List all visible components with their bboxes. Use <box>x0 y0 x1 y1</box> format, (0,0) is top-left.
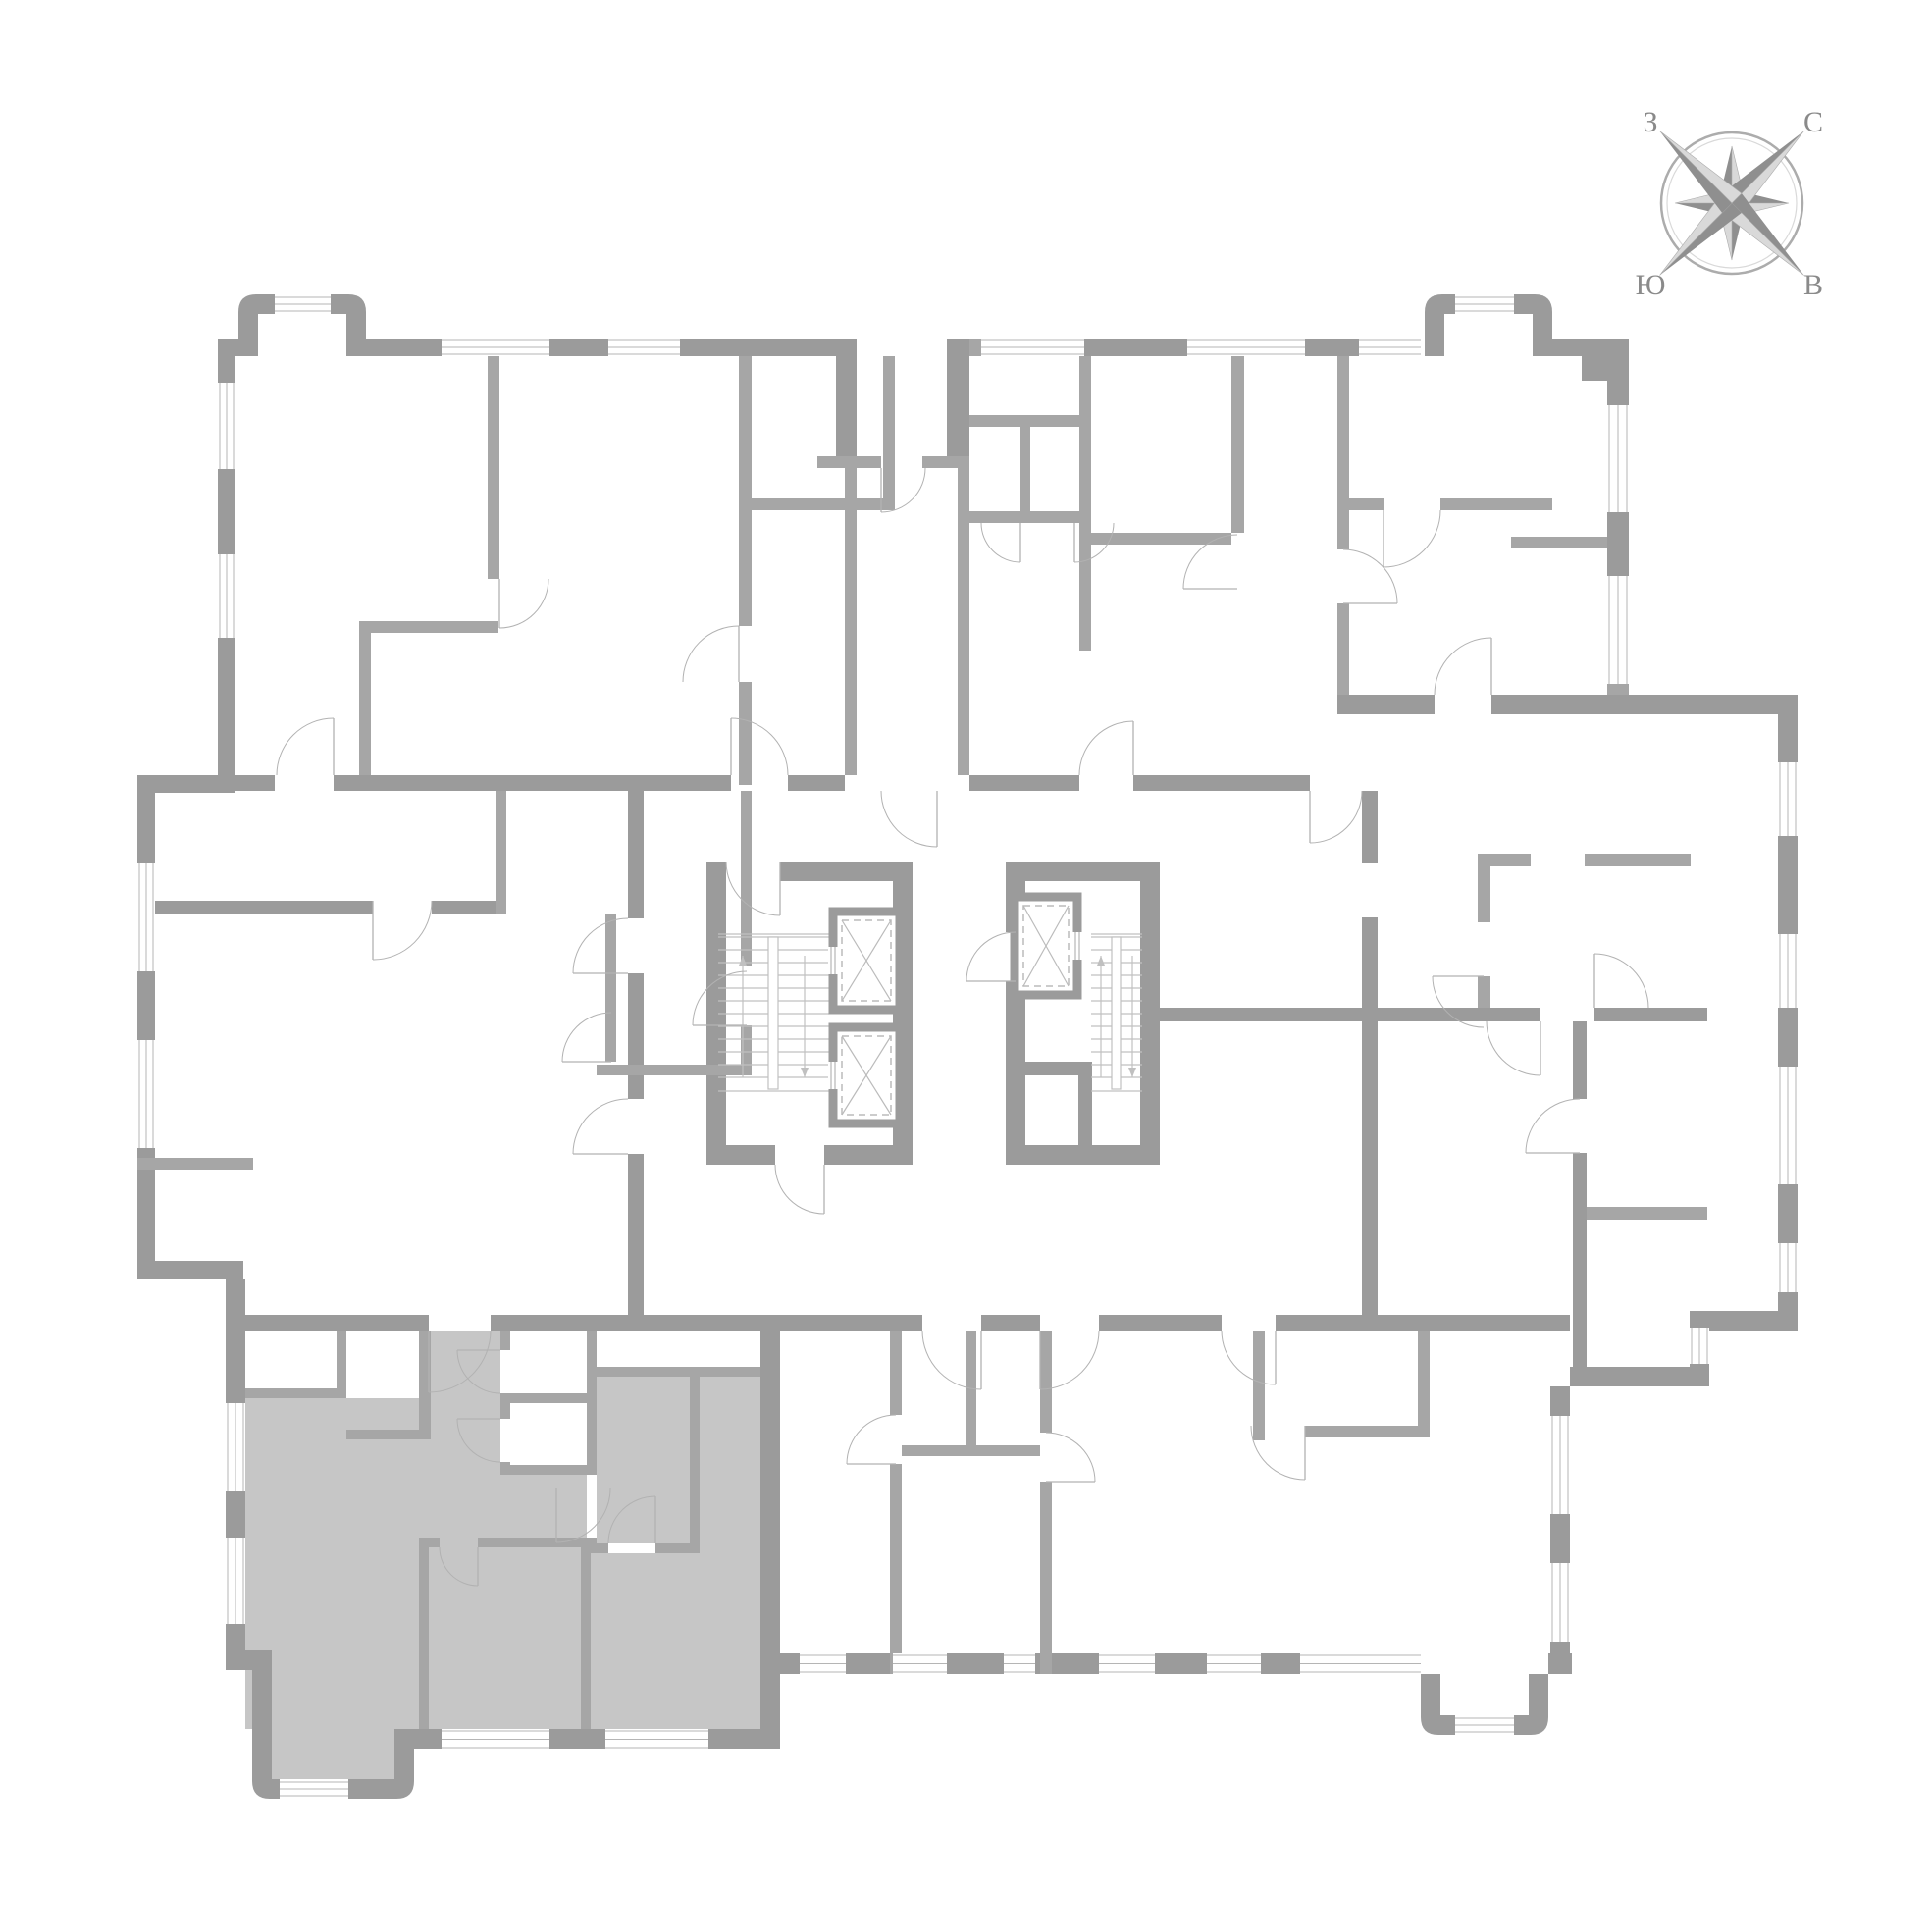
wall <box>1099 1315 1222 1331</box>
wall <box>1440 498 1552 510</box>
wall <box>1709 1311 1798 1331</box>
wall <box>947 339 969 468</box>
wall <box>890 1331 902 1415</box>
wall <box>1040 1482 1052 1674</box>
wall <box>628 791 644 918</box>
wall <box>655 1543 700 1553</box>
wall <box>245 1388 346 1398</box>
wall <box>680 339 836 356</box>
wall <box>1550 1514 1570 1563</box>
wall <box>1511 537 1607 548</box>
wall <box>739 682 752 785</box>
wall <box>1778 1184 1798 1243</box>
wall <box>958 468 969 775</box>
bay-interior <box>272 1729 394 1779</box>
wall <box>947 1653 1004 1674</box>
wall <box>1253 1331 1265 1440</box>
wall <box>419 1547 429 1729</box>
wall <box>752 498 883 510</box>
wall <box>549 339 608 356</box>
wall <box>337 1331 346 1398</box>
highlighted-room <box>700 1377 760 1553</box>
wall <box>1778 1008 1798 1067</box>
wall <box>1040 1331 1052 1433</box>
wall <box>1078 1062 1092 1165</box>
wall <box>1305 339 1359 356</box>
wall <box>491 1315 922 1331</box>
wall <box>1020 427 1030 523</box>
wall <box>1079 356 1091 523</box>
floor-plan: СВЮЗ <box>0 0 1932 1932</box>
wall <box>137 1261 243 1279</box>
compass-direction-label: С <box>1803 106 1823 138</box>
stair-stringer <box>768 937 778 1089</box>
wall <box>218 469 235 554</box>
wall <box>137 793 155 863</box>
wall <box>155 901 373 914</box>
wall <box>1418 1331 1430 1437</box>
wall <box>788 775 845 791</box>
wall <box>1006 862 1160 881</box>
wall <box>581 1547 591 1729</box>
wall <box>1552 339 1629 356</box>
wall <box>708 1729 780 1749</box>
wall <box>1491 695 1619 714</box>
wall <box>883 356 895 510</box>
wall <box>432 901 498 914</box>
wall <box>252 1658 272 1737</box>
compass-direction-label: Ю <box>1636 269 1666 301</box>
wall <box>1594 1008 1707 1021</box>
highlighted-room <box>419 1439 429 1538</box>
wall <box>605 914 616 1062</box>
wall <box>1231 356 1244 533</box>
wall <box>1362 791 1378 863</box>
wall <box>1478 866 1490 922</box>
wall <box>1690 1311 1709 1328</box>
wall <box>346 1430 429 1439</box>
wall <box>1079 523 1091 651</box>
wall <box>690 1377 700 1553</box>
wall <box>969 415 1086 427</box>
wall <box>587 1331 597 1475</box>
wall <box>1778 714 1798 762</box>
wall <box>218 638 235 775</box>
wall <box>1582 356 1607 381</box>
wall <box>1585 854 1691 866</box>
wall <box>137 1158 253 1170</box>
wall <box>1084 339 1187 356</box>
wall <box>836 339 857 468</box>
wall <box>366 339 442 356</box>
stair-stringer <box>1112 937 1121 1089</box>
wall <box>1587 1207 1707 1220</box>
wall <box>706 1145 775 1165</box>
wall <box>1305 1426 1418 1437</box>
wall <box>902 1445 1040 1456</box>
wall <box>1607 684 1629 695</box>
wall <box>414 1315 429 1331</box>
wall <box>496 791 506 914</box>
highlighted-room <box>346 1439 419 1729</box>
wall <box>817 456 881 468</box>
wall <box>419 1538 440 1547</box>
wall <box>845 468 857 775</box>
elevator-door-opening <box>1072 932 1082 960</box>
wall <box>1362 917 1378 1008</box>
highlighted-room <box>591 1553 760 1729</box>
wall <box>226 1624 245 1670</box>
wall <box>1607 512 1629 576</box>
wall <box>1133 775 1310 791</box>
wall <box>500 1393 597 1403</box>
wall <box>780 1653 800 1674</box>
wall <box>359 633 371 775</box>
wall <box>1550 1386 1570 1416</box>
wall <box>414 1729 442 1749</box>
elevator-door-opening <box>828 1062 838 1089</box>
wall <box>1261 1653 1300 1674</box>
wall <box>641 775 731 791</box>
wall <box>1349 498 1384 510</box>
wall <box>969 775 1079 791</box>
wall <box>359 621 498 633</box>
wall <box>890 1464 902 1674</box>
elevator-door-opening <box>828 947 838 974</box>
wall <box>824 1145 913 1165</box>
highlighted-room <box>597 1377 690 1543</box>
wall <box>478 1538 597 1547</box>
wall <box>1276 1315 1421 1331</box>
bay-interior <box>1444 314 1533 356</box>
wall <box>922 456 969 468</box>
wall <box>628 973 644 1099</box>
wall <box>549 1729 605 1749</box>
compass-direction-label: З <box>1643 106 1657 138</box>
wall <box>739 356 752 626</box>
wall <box>226 1315 414 1331</box>
bay-interior <box>258 314 346 356</box>
wall <box>1337 695 1435 714</box>
wall <box>969 339 981 356</box>
wall <box>1619 695 1798 714</box>
wall <box>1573 1021 1587 1099</box>
wall <box>500 1331 510 1350</box>
wall <box>760 1331 780 1729</box>
wall <box>981 1315 1040 1331</box>
wall <box>218 339 235 383</box>
wall <box>1478 854 1531 866</box>
wall <box>1548 1653 1572 1674</box>
compass-direction-label: В <box>1803 269 1823 301</box>
wall <box>226 1279 245 1403</box>
wall <box>741 791 752 966</box>
highlighted-room <box>500 1475 587 1547</box>
wall <box>1362 1021 1378 1315</box>
wall <box>1573 1220 1587 1367</box>
wall <box>1570 1367 1709 1386</box>
wall <box>1778 836 1798 934</box>
wall <box>969 511 1086 523</box>
wall <box>226 1491 245 1538</box>
wall <box>1337 356 1349 510</box>
wall <box>500 1465 597 1475</box>
floor-plan-page: СВЮЗ <box>0 0 1932 1932</box>
wall <box>1573 1153 1587 1220</box>
wall <box>846 1653 893 1674</box>
wall <box>628 1154 644 1315</box>
wall <box>1140 862 1160 1165</box>
wall <box>1607 356 1629 405</box>
wall <box>1337 603 1349 695</box>
wall <box>1337 510 1349 549</box>
wall <box>1478 976 1490 1008</box>
wall <box>488 356 499 579</box>
wall <box>334 775 641 791</box>
bay-interior <box>1440 1674 1529 1715</box>
wall <box>780 862 913 881</box>
wall <box>1421 1315 1570 1331</box>
wall <box>597 1065 752 1075</box>
wall <box>218 775 275 791</box>
wall <box>587 1367 770 1377</box>
wall <box>137 971 155 1040</box>
wall <box>1160 1008 1540 1021</box>
wall <box>1155 1653 1207 1674</box>
